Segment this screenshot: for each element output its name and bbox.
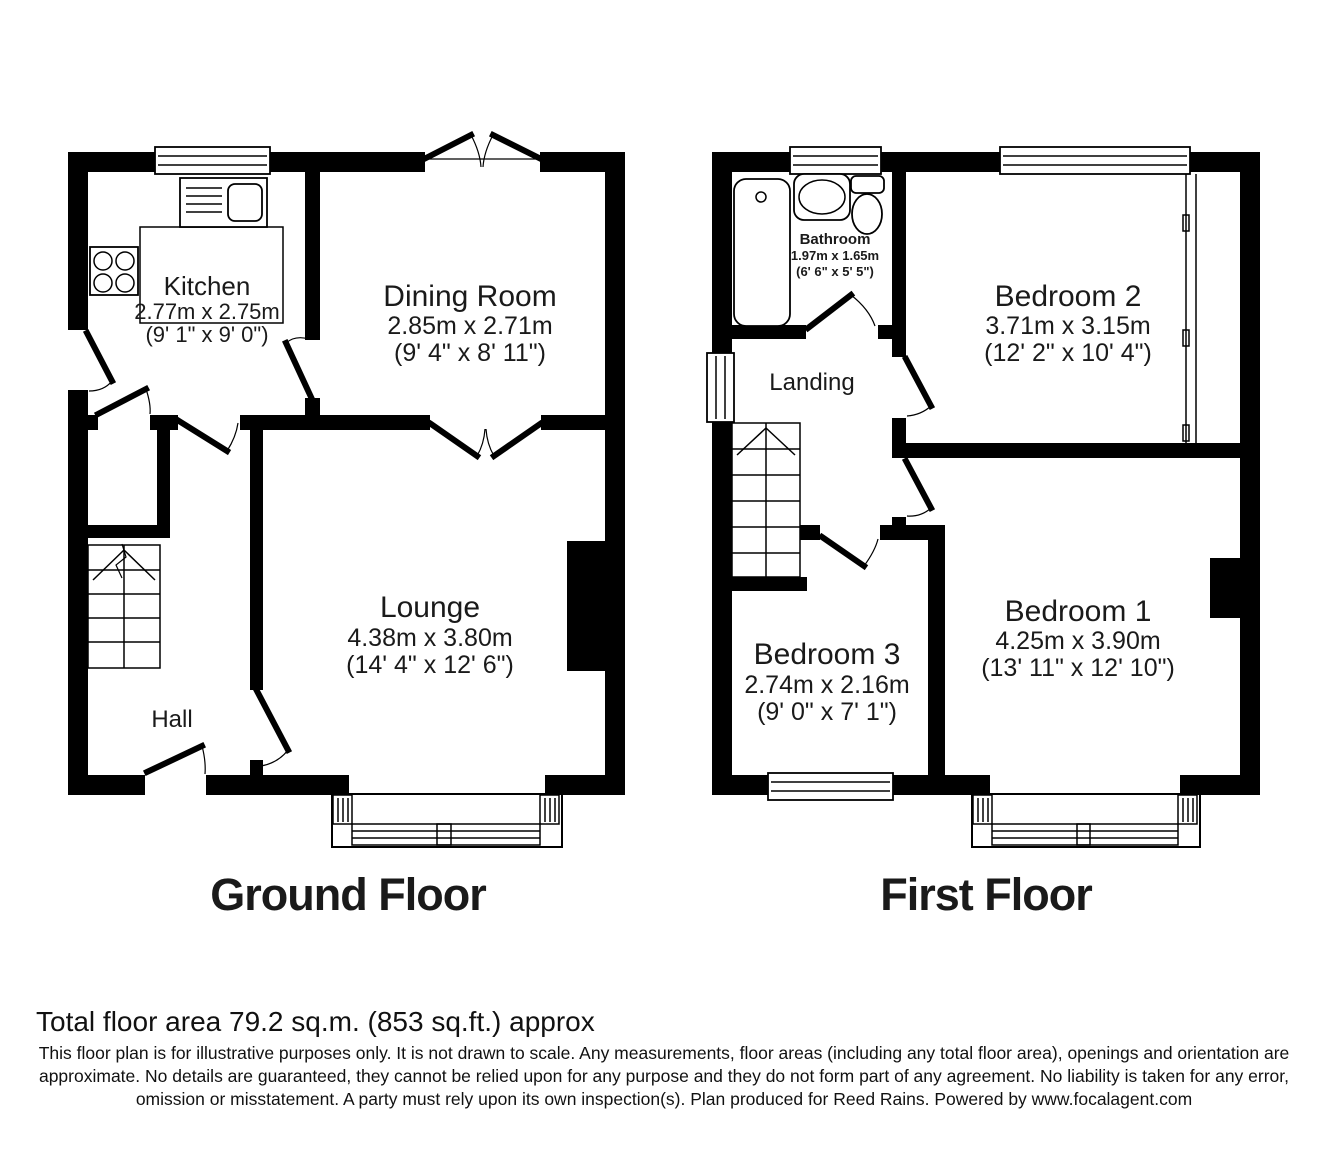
total-floor-area: Total floor area 79.2 sq.m. (853 sq.ft.)… <box>36 1006 1328 1038</box>
room-dim-imperial: (14' 4" x 12' 6") <box>346 651 514 679</box>
landing-window <box>707 353 734 422</box>
chimney-breast <box>1210 558 1242 618</box>
dining-lounge-double-doors <box>431 424 540 456</box>
bedroom1-bay-window <box>972 794 1200 847</box>
room-label-bedroom2: Bedroom 2 <box>995 280 1142 313</box>
staircase-first <box>732 423 800 577</box>
room-dim-metric: 4.25m x 3.90m <box>995 627 1160 655</box>
room-dim-imperial: (12' 2" x 10' 4") <box>984 339 1152 367</box>
toilet <box>851 176 884 234</box>
bedroom2-window <box>1000 147 1190 174</box>
room-label-lounge: Lounge <box>380 591 480 624</box>
dining-french-doors <box>425 135 540 167</box>
room-label-bedroom1: Bedroom 1 <box>1005 595 1152 628</box>
bedroom2-side-glazing <box>1183 174 1196 447</box>
kitchen-window <box>155 147 270 174</box>
staircase-ground <box>88 544 160 668</box>
back-door <box>87 333 112 391</box>
first-floor-plan: Bathroom 1.97m x 1.65m (6' 6" x 5' 5") B… <box>707 147 1260 920</box>
bedroom2-door <box>906 359 931 416</box>
room-label-dining: Dining Room <box>383 280 556 313</box>
kitchen-dining-door <box>286 338 311 397</box>
bedroom3-window <box>768 773 893 800</box>
bathroom-door <box>808 295 875 328</box>
room-dim-metric: 3.71m x 3.15m <box>985 312 1150 340</box>
bedroom1-door <box>906 461 931 516</box>
front-door <box>147 746 205 774</box>
room-dim-metric: 2.85m x 2.71m <box>387 312 552 340</box>
room-dim-metric: 1.97m x 1.65m <box>791 248 879 263</box>
pantry-door <box>98 389 150 414</box>
sink-unit <box>180 178 267 227</box>
kitchen-hall-door <box>179 421 238 451</box>
room-dim-imperial: (6' 6" x 5' 5") <box>796 264 874 279</box>
footer: Total floor area 79.2 sq.m. (853 sq.ft.)… <box>0 998 1328 1111</box>
ground-floor-title: Ground Floor <box>210 869 486 920</box>
room-dim-imperial: (9' 4" x 8' 11") <box>394 339 546 367</box>
room-dim-metric: 2.74m x 2.16m <box>744 671 909 699</box>
chimney-breast <box>567 541 605 671</box>
room-dim-metric: 4.38m x 3.80m <box>347 624 512 652</box>
floorplan-drawing: Kitchen 2.77m x 2.75m (9' 1" x 9' 0") Di… <box>0 0 1328 985</box>
lounge-bay-window <box>332 794 562 847</box>
hall-lounge-door <box>257 691 288 766</box>
bedroom3-door <box>822 537 878 566</box>
room-dim-imperial: (13' 11" x 12' 10") <box>981 654 1175 682</box>
basin <box>794 174 850 220</box>
bathroom-window <box>790 147 881 174</box>
disclaimer-text: This floor plan is for illustrative purp… <box>30 1042 1298 1111</box>
first-floor-title: First Floor <box>880 869 1092 920</box>
room-dim-imperial: (9' 1" x 9' 0") <box>145 322 268 347</box>
room-dim-metric: 2.77m x 2.75m <box>134 299 280 324</box>
hob <box>90 247 138 295</box>
floorplan-page: Kitchen 2.77m x 2.75m (9' 1" x 9' 0") Di… <box>0 0 1328 1151</box>
room-label-kitchen: Kitchen <box>164 271 251 301</box>
bathtub <box>734 179 790 326</box>
room-label-bathroom: Bathroom <box>800 231 871 248</box>
room-label-landing: Landing <box>769 369 854 396</box>
room-label-bedroom3: Bedroom 3 <box>754 638 901 671</box>
ground-floor-plan: Kitchen 2.77m x 2.75m (9' 1" x 9' 0") Di… <box>68 135 625 920</box>
room-dim-imperial: (9' 0" x 7' 1") <box>757 698 897 726</box>
room-label-hall: Hall <box>151 706 192 733</box>
